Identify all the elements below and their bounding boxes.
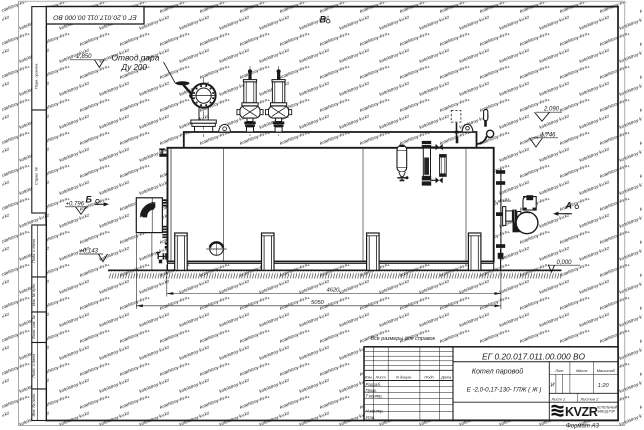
svg-text:Разраб.: Разраб. <box>366 382 382 387</box>
svg-text:Лист 1: Лист 1 <box>551 396 566 401</box>
svg-text:Инв. № дубл.: Инв. № дубл. <box>32 283 36 306</box>
svg-text:Лит.: Лит. <box>554 368 564 373</box>
svg-text:Все размеры для справок: Все размеры для справок <box>371 336 436 342</box>
svg-text:Инв. № подл.: Инв. № подл. <box>32 393 36 417</box>
svg-text:Изм.: Изм. <box>364 374 372 379</box>
svg-text:Масса: Масса <box>576 368 588 373</box>
svg-text:1,746: 1,746 <box>541 132 557 138</box>
svg-text:Пров.: Пров. <box>366 388 377 393</box>
svg-text:ЕГ 0.20.017.011.00.000 ВО: ЕГ 0.20.017.011.00.000 ВО <box>53 14 137 21</box>
svg-text:Формат А3: Формат А3 <box>566 424 599 430</box>
svg-text:Взам. инв. №: Взам. инв. № <box>32 315 36 338</box>
svg-text:2,090: 2,090 <box>543 107 560 113</box>
svg-text:4620: 4620 <box>327 288 341 294</box>
svg-text:Справ. №: Справ. № <box>34 166 39 185</box>
svg-text:И: И <box>551 383 555 389</box>
svg-text:5050: 5050 <box>311 300 325 306</box>
svg-text:Подп. и дата: Подп. и дата <box>32 354 36 378</box>
svg-text:Подп. и дата: Подп. и дата <box>32 239 36 263</box>
svg-text:KVZR: KVZR <box>565 405 598 419</box>
svg-text:Утв.: Утв. <box>366 415 376 420</box>
svg-text:В: В <box>320 15 327 25</box>
svg-text:Масштаб: Масштаб <box>597 368 616 373</box>
svg-text:2,850: 2,850 <box>76 54 93 60</box>
svg-text:Котел паровой: Котел паровой <box>472 366 524 375</box>
svg-text:Отвод пара: Отвод пара <box>112 53 160 63</box>
svg-text:Лист: Лист <box>375 374 387 379</box>
svg-text:Е -2,0-0,17-130- ГЛЖ ( Ж ): Е -2,0-0,17-130- ГЛЖ ( Ж ) <box>467 387 542 394</box>
svg-text:N докум.: N докум. <box>396 374 412 379</box>
svg-text:Т.контр.: Т.контр. <box>366 394 383 399</box>
svg-text:Ду 200: Ду 200 <box>121 63 148 72</box>
svg-text:Б: Б <box>86 194 93 204</box>
svg-text:Подп.: Подп. <box>424 374 434 379</box>
svg-text:ЕГ 0.20.017.011.00.000 ВО: ЕГ 0.20.017.011.00.000 ВО <box>482 351 585 361</box>
svg-text:Дата: Дата <box>440 374 452 379</box>
svg-text:Листов 2: Листов 2 <box>579 396 599 401</box>
svg-text:1:20: 1:20 <box>598 383 610 389</box>
svg-text:Н.контр.: Н.контр. <box>366 409 384 414</box>
svg-text:А: А <box>565 200 573 210</box>
svg-text:ЗАВОД РЗР: ЗАВОД РЗР <box>597 410 616 414</box>
svg-text:Перв. примен.: Перв. примен. <box>34 63 39 90</box>
